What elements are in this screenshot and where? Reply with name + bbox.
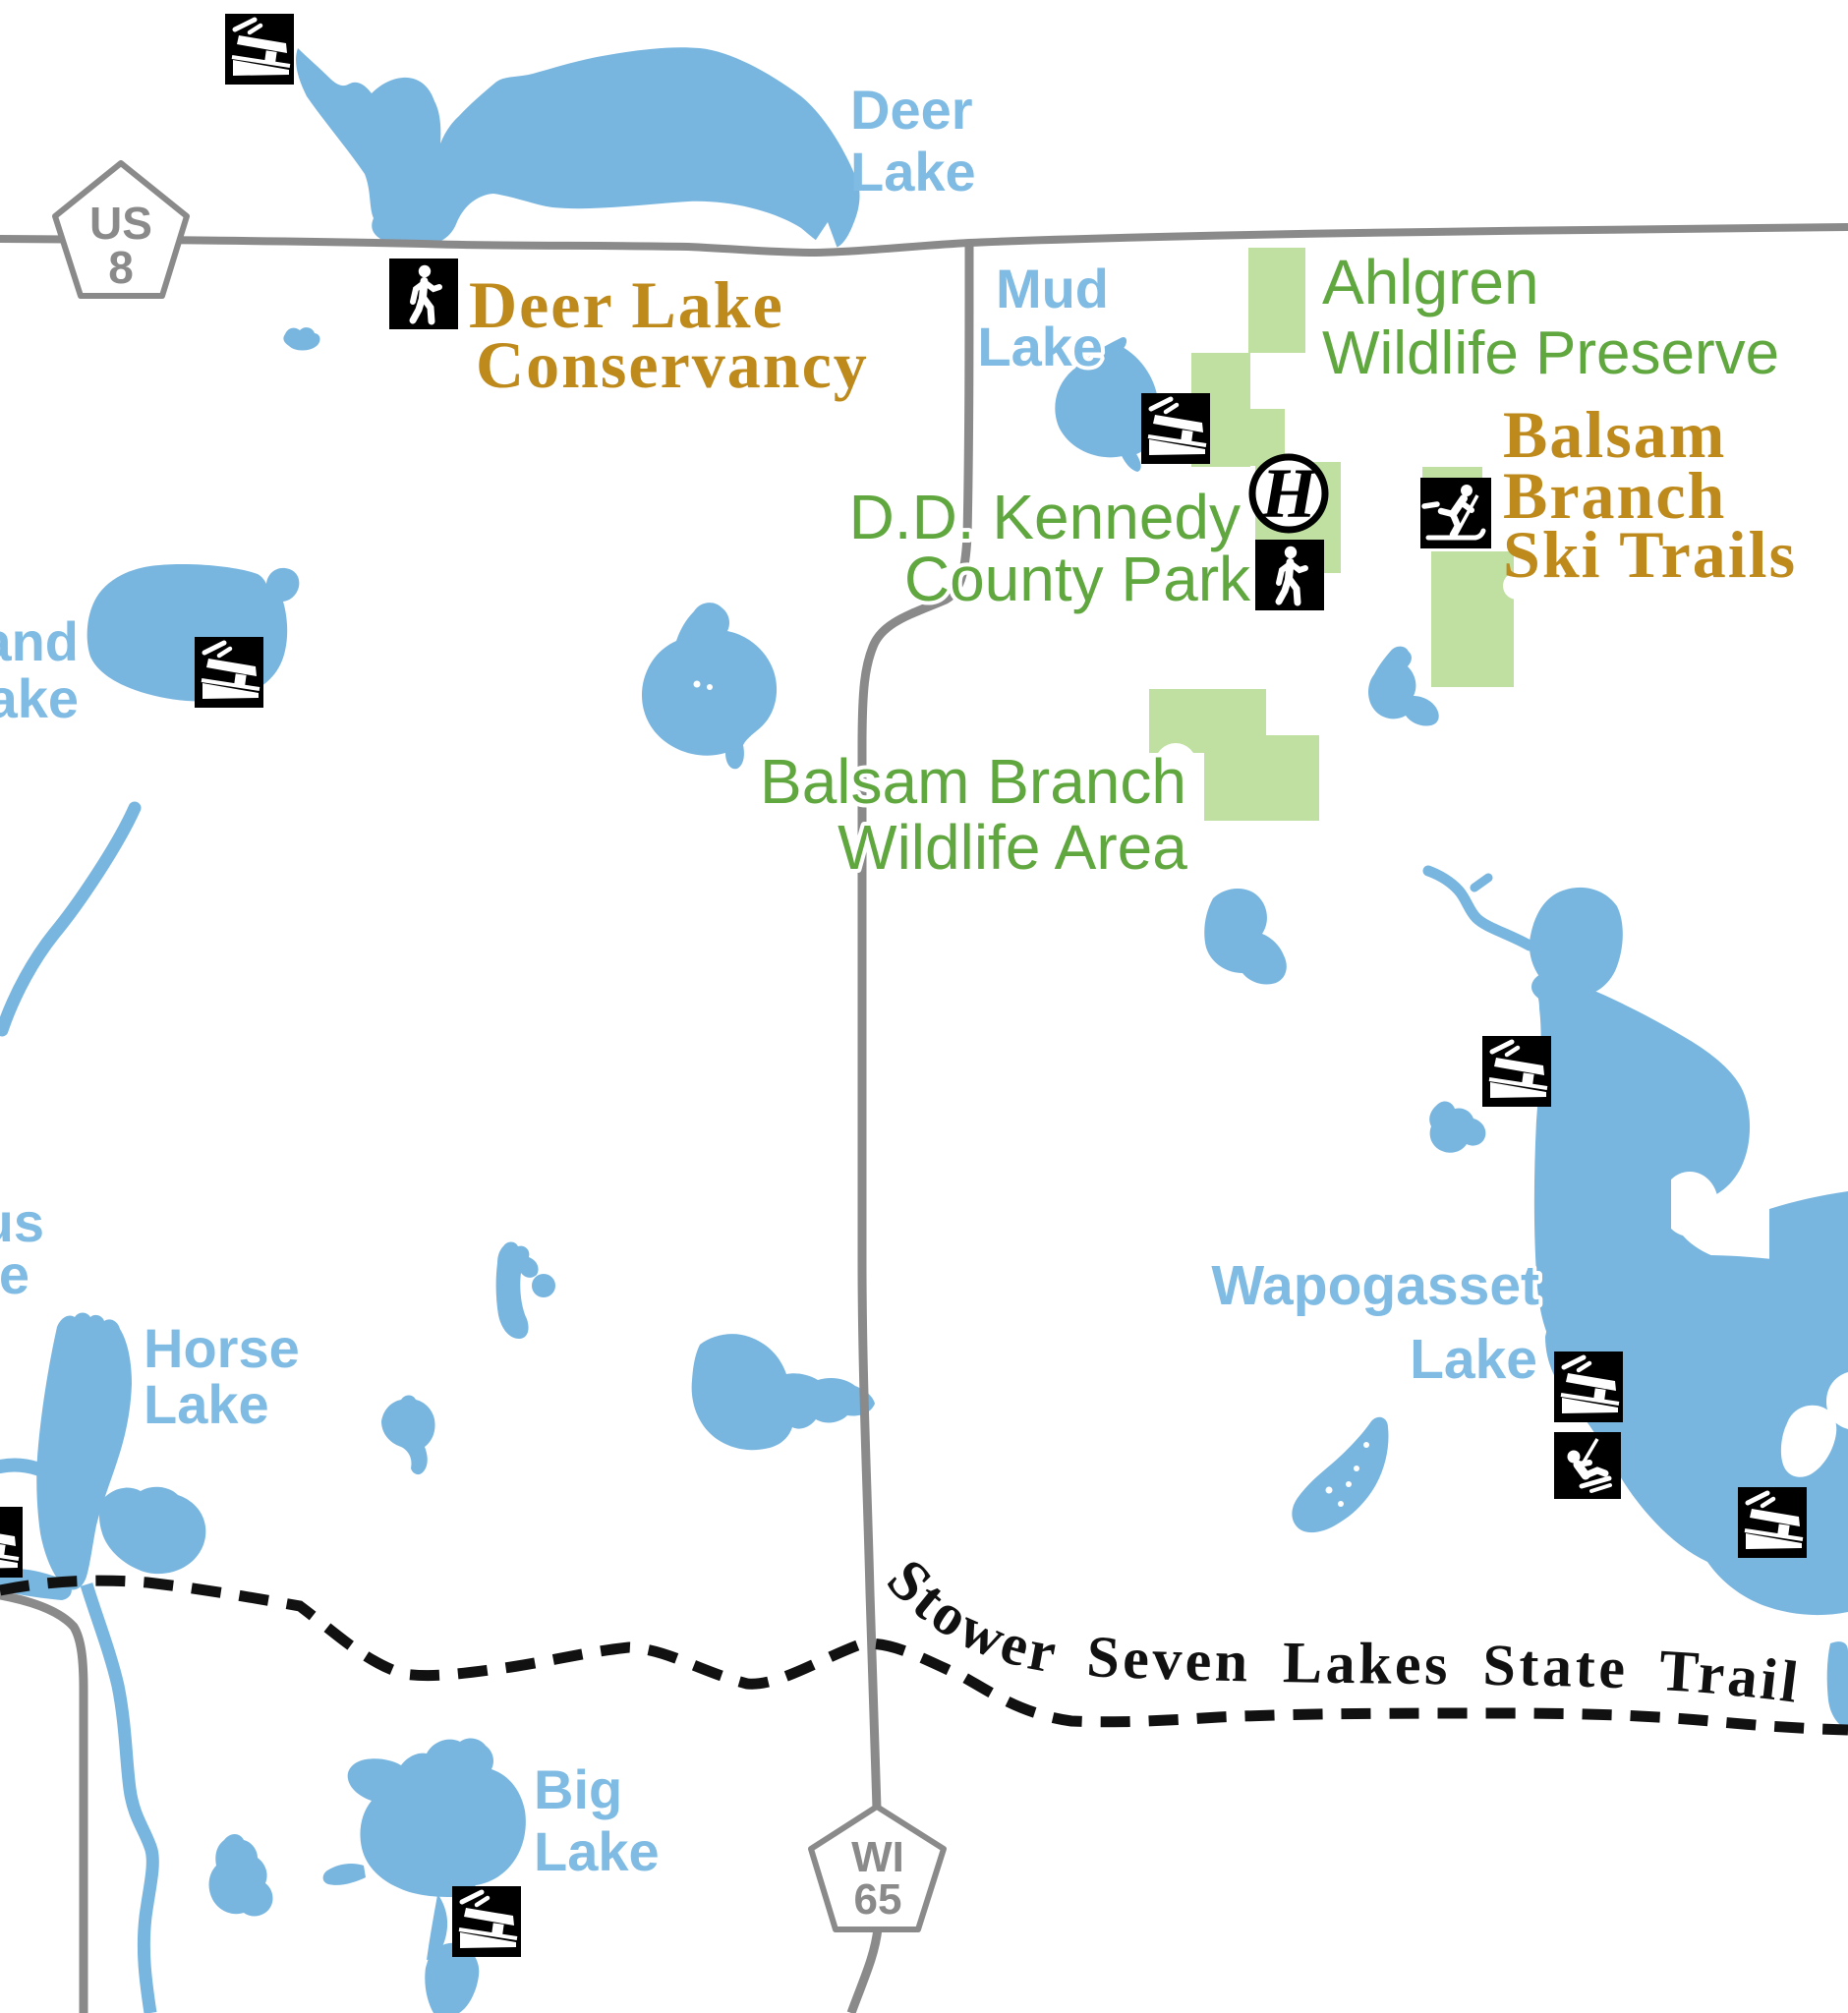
- svg-text:County Park: County Park: [904, 544, 1251, 614]
- svg-text:Wapogasset: Wapogasset: [1211, 1254, 1539, 1317]
- svg-text:Horse: Horse: [144, 1317, 300, 1379]
- svg-text:Balsam Branch: Balsam Branch: [760, 746, 1186, 817]
- svg-text:Lake: Lake: [1410, 1328, 1537, 1391]
- svg-text:Conservancy: Conservancy: [476, 327, 869, 402]
- svg-text:Ski Trails: Ski Trails: [1503, 517, 1797, 592]
- svg-text:H: H: [1260, 454, 1318, 533]
- svg-text:Lake: Lake: [144, 1373, 269, 1435]
- svg-text:Wildlife Preserve: Wildlife Preserve: [1322, 319, 1779, 387]
- svg-text:Big: Big: [534, 1758, 622, 1820]
- svg-text:Lake: Lake: [850, 141, 976, 202]
- svg-text:Lake: Lake: [534, 1820, 660, 1882]
- svg-text:and: and: [0, 610, 79, 672]
- svg-text:e: e: [0, 1243, 29, 1305]
- svg-text:Deer: Deer: [850, 79, 973, 141]
- svg-text:Wildlife Area: Wildlife Area: [837, 812, 1187, 883]
- svg-text:ake: ake: [0, 667, 79, 729]
- svg-text:WI: WI: [851, 1833, 904, 1881]
- svg-text:8: 8: [108, 242, 134, 293]
- svg-text:Ahlgren: Ahlgren: [1322, 247, 1539, 317]
- svg-text:D.D. Kennedy: D.D. Kennedy: [849, 482, 1241, 552]
- svg-text:Lake: Lake: [977, 316, 1103, 377]
- svg-text:Mud: Mud: [996, 258, 1109, 319]
- svg-text:65: 65: [854, 1875, 902, 1924]
